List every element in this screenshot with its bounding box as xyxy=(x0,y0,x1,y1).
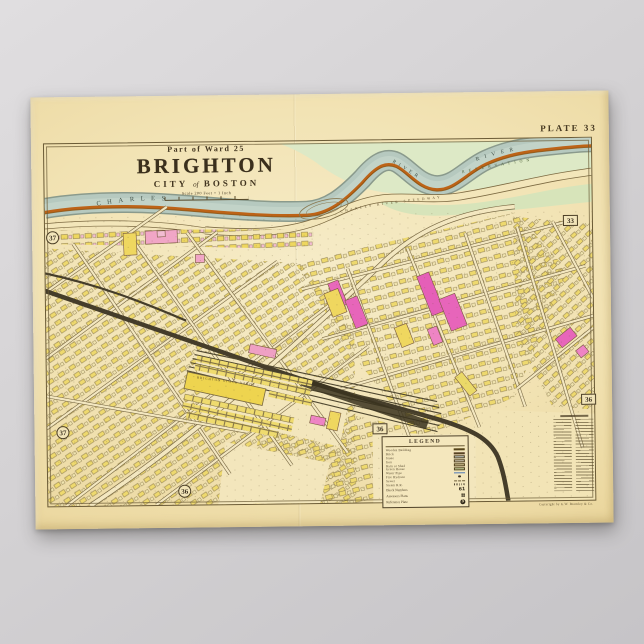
plate-ref-badge-33: 33 xyxy=(563,215,578,226)
legend-swatch xyxy=(454,480,465,481)
street-index-column xyxy=(553,419,572,491)
legend-label: Reference Plate xyxy=(386,500,407,504)
plate-ref-badge-37-lower: 37 xyxy=(56,426,69,439)
legend-extra-row: Block Numbers61 xyxy=(386,487,465,493)
legend-label: Block Numbers xyxy=(386,488,407,492)
plate-ref-badge-37-upper: 37 xyxy=(46,231,59,244)
publisher-credit: Copyright by G.W. Bromley & Co. xyxy=(435,501,593,507)
legend-extra-row: Assessors Plans▦ xyxy=(386,493,465,499)
legend-swatch xyxy=(454,456,465,459)
map-subtitle: CITY of BOSTON xyxy=(101,177,311,190)
legend-swatch xyxy=(454,467,465,470)
map-poster: PLATE 33 xyxy=(30,90,613,529)
street-index xyxy=(553,415,596,496)
legend-label: Steam R.R. xyxy=(386,483,403,487)
map-title: BRIGHTON xyxy=(101,153,311,178)
legend-swatch xyxy=(454,448,465,451)
plate-ref-badge-36-mid: 36 xyxy=(372,423,387,434)
legend-swatch xyxy=(454,452,465,455)
plate-ref-badge-36-bottom: 36 xyxy=(178,485,191,498)
legend-swatch xyxy=(454,463,465,466)
subtitle-of-word: of xyxy=(193,180,199,188)
micro-text-texture xyxy=(45,208,596,507)
legend-label: Assessors Plans xyxy=(386,494,408,498)
subtitle-city-word: CITY xyxy=(154,178,188,188)
plate-ref-badge-36-right: 36 xyxy=(581,394,596,405)
block-number-sample: 61 xyxy=(459,487,465,492)
assessors-plan-icon: ▦ xyxy=(461,493,465,498)
legend-swatch xyxy=(454,483,465,485)
legend-box: LEGEND Wooden Building Brick Stone Iron … xyxy=(382,435,470,508)
product-photo-background: { "page": {"background_top": "#e0dee0", … xyxy=(0,0,644,644)
legend-swatch xyxy=(458,475,461,478)
legend-swatch xyxy=(454,460,465,463)
map-title-block: Part of Ward 25 BRIGHTON CITY of BOSTON … xyxy=(101,143,312,202)
street-index-header xyxy=(560,415,588,417)
subtitle-boston-word: BOSTON xyxy=(204,177,259,188)
street-index-column xyxy=(575,419,594,491)
legend-swatch xyxy=(454,472,465,473)
legend-title: LEGEND xyxy=(386,438,465,447)
plate-label: PLATE 33 xyxy=(540,123,597,134)
